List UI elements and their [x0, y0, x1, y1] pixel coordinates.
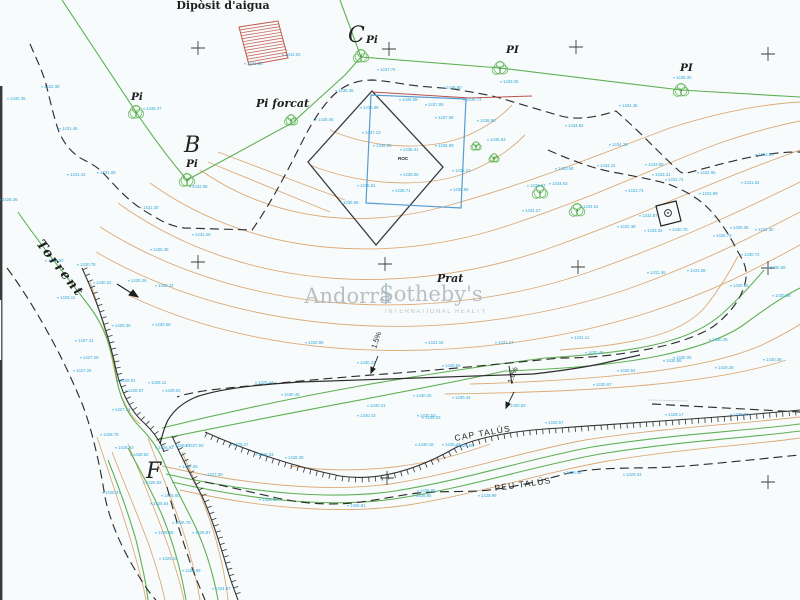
talus-tick: [209, 512, 214, 514]
grid-cross: [761, 47, 775, 61]
elevation-dot: [362, 132, 363, 133]
elevation-label: 1435.88: [363, 105, 379, 110]
elevation-dot: [665, 414, 666, 415]
elevation-label: 1431.30: [143, 205, 159, 210]
elevation-dot: [57, 297, 58, 298]
elevation-dot: [185, 445, 186, 446]
water-tank-hatch-line: [244, 38, 283, 44]
tree-center: [499, 67, 501, 69]
elevation-label: 1431.08: [100, 170, 116, 175]
elevation-label: 1429.28: [718, 365, 734, 370]
structure-symbol: [656, 201, 681, 226]
elevation-dot: [463, 99, 464, 100]
elevation-dot: [593, 384, 594, 385]
elevation-label: 1434.51: [583, 204, 599, 209]
water-tank-hatch: [240, 24, 287, 62]
elevation-label: 1432.35: [10, 96, 26, 101]
talus-tick: [196, 482, 200, 484]
grid-cross: [191, 41, 205, 55]
elevation-label: 1426.85: [416, 493, 432, 498]
contour-line: [330, 105, 512, 146]
elevation-dot: [59, 128, 60, 129]
elevation-label: 1427.05: [182, 464, 198, 469]
talus-tick: [111, 348, 116, 349]
elevation-dot: [305, 342, 306, 343]
lower-talus-line: [172, 436, 238, 600]
elevation-dot: [571, 337, 572, 338]
tree-icon: [489, 154, 499, 163]
tree-center: [475, 145, 477, 147]
elevation-dot: [413, 395, 414, 396]
elevation-label: 1428.87: [128, 388, 144, 393]
pi-label: Pi: [130, 91, 143, 103]
elevation-dot: [699, 193, 700, 194]
elevation-label: 1430.38: [766, 357, 782, 362]
talus-tick: [106, 329, 111, 330]
elevation-dot: [255, 454, 256, 455]
elevation-dot: [730, 414, 731, 415]
elevation-dot: [425, 342, 426, 343]
elevation-dot: [367, 405, 368, 406]
red-survey-line: [372, 92, 532, 98]
pi-label: PI: [505, 44, 520, 56]
elevation-dot: [155, 447, 156, 448]
boundary-lines: [7, 44, 800, 600]
elevation-label: 1430.22: [360, 360, 376, 365]
elevation-label: 1427.28: [83, 355, 99, 360]
watermark: Andorra Sotheby's INTERNATIONAL REALTY: [303, 282, 487, 315]
elevation-label: 1432.96: [700, 170, 716, 175]
talus-tick: [247, 450, 249, 455]
elevation-dot: [112, 325, 113, 326]
elevation-label: 1430.78: [80, 262, 96, 267]
elevation-dot: [645, 164, 646, 165]
elevation-label: 1436.63: [490, 137, 506, 142]
elevation-dot: [609, 144, 610, 145]
talus-tick: [150, 426, 154, 429]
elevation-label: 1435.81: [360, 183, 376, 188]
talus-tick: [205, 500, 210, 502]
grid-cross: [571, 260, 585, 274]
tree-center: [493, 157, 495, 159]
elevation-dot: [452, 170, 453, 171]
elevation-label: 1430.55: [733, 283, 749, 288]
elevation-dot: [340, 202, 341, 203]
talus-tick: [126, 397, 130, 399]
elevation-label: 1437.13: [365, 130, 381, 135]
elevation-label: 1435.56: [453, 187, 469, 192]
elevation-dot: [360, 107, 361, 108]
water-tank-hatch-line: [240, 24, 279, 30]
tree-center: [680, 89, 682, 91]
elevation-dot: [617, 226, 618, 227]
elevation-dot: [282, 54, 283, 55]
elevation-dot: [435, 145, 436, 146]
talus-tick: [137, 412, 141, 415]
elevation-label: 1428.35: [115, 323, 131, 328]
grid-cross: [191, 255, 205, 269]
talus-tick: [316, 471, 317, 476]
elevation-dot: [425, 104, 426, 105]
peu-talus-label: PEU TALÚS: [494, 475, 552, 493]
elevation-dot: [112, 409, 113, 410]
elevation-dot: [555, 168, 556, 169]
elevation-dot: [315, 119, 316, 120]
elevation-label: 1429.96: [458, 443, 474, 448]
elevation-label: 1433.74: [628, 188, 644, 193]
elevation-label: 1433.98: [558, 166, 574, 171]
water-tank-hatch-line: [241, 30, 280, 36]
water-tank-hatch-line: [247, 49, 286, 56]
talus-tick: [207, 506, 212, 508]
talus-tick: [236, 592, 241, 594]
elevation-dot: [255, 382, 256, 383]
grid-cross: [761, 475, 775, 489]
elevation-dot: [155, 285, 156, 286]
elevation-label: 1430.76: [672, 227, 688, 232]
elevation-label: 1424.98: [185, 568, 201, 573]
tree-icon: [471, 142, 481, 151]
elevation-label: 1431.84: [744, 180, 760, 185]
elevation-dot: [41, 86, 42, 87]
prat-label: Prat: [436, 272, 463, 285]
elevation-dot: [763, 359, 764, 360]
talus-tick: [272, 458, 274, 463]
talus-tick: [523, 431, 524, 436]
talus-tick: [491, 436, 492, 441]
talus-tick: [394, 473, 395, 478]
grid-cross: [569, 40, 583, 54]
pi-forcat-label: Pi forcat: [255, 97, 309, 110]
elevation-label: 1435.68: [402, 97, 418, 102]
elevation-dot: [172, 445, 173, 446]
roc-label: ROC: [398, 156, 409, 161]
elevation-dot: [150, 249, 151, 250]
elevation-dot: [500, 81, 501, 82]
elevation-dot: [161, 495, 162, 496]
elevation-label: 1443.02: [285, 52, 301, 57]
water-tank-outline: [239, 21, 288, 65]
talus-tick: [129, 402, 133, 405]
tree-icon: [128, 105, 144, 118]
elevation-dot: [663, 360, 664, 361]
elevation-label: 1431.89: [758, 152, 774, 157]
elevation-label: 1425.58: [158, 530, 174, 535]
talus-tick: [401, 471, 402, 476]
elevation-label: 1430.98: [666, 358, 682, 363]
elevation-dot: [230, 444, 231, 445]
tree-center: [135, 111, 137, 113]
elevation-dot: [400, 149, 401, 150]
elevation-label: 1436.31: [403, 147, 419, 152]
elevation-label: 1429.02: [165, 388, 181, 393]
elevation-dot: [75, 340, 76, 341]
elevation-label: 1424.87: [215, 586, 231, 591]
talus-tick: [303, 468, 304, 473]
pi-label: Pi: [365, 34, 378, 46]
elevation-dot: [143, 108, 144, 109]
talus-tick: [102, 317, 107, 319]
elevation-dot: [150, 503, 151, 504]
elevation-label: 1437.58: [438, 115, 454, 120]
talus-tick: [113, 354, 118, 355]
talus-tick: [335, 475, 336, 480]
elevation-dot: [452, 397, 453, 398]
road-lines: [160, 355, 640, 444]
elevation-dot: [115, 447, 116, 448]
elevation-label: 1430.48: [153, 247, 169, 252]
elevation-dot: [102, 492, 103, 493]
elevation-dot: [93, 282, 94, 283]
talus-tick: [218, 537, 223, 539]
water-tank: [239, 21, 288, 65]
talus-tick: [146, 421, 150, 425]
grid-cross: [382, 42, 396, 56]
talus-tick: [229, 574, 234, 576]
talus-tick: [121, 385, 126, 387]
elevation-label: 1431.18: [428, 340, 444, 345]
elevation-label: 1426.92: [158, 445, 174, 450]
elevation-dot: [619, 105, 620, 106]
elevation-label: 1432.98: [192, 184, 208, 189]
elevation-dot: [741, 254, 742, 255]
talus-tick: [154, 431, 158, 434]
elevation-label: 1428.91: [120, 378, 136, 383]
elevation-label: 1430.66: [445, 363, 461, 368]
tree-center: [186, 179, 188, 181]
elevation-label: 1437.89: [428, 102, 444, 107]
elevation-label: 1435.47: [146, 106, 162, 111]
elevation-label: 1434.63: [552, 181, 568, 186]
elevation-dot: [715, 367, 716, 368]
elevation-dot: [192, 234, 193, 235]
elevation-label: 1430.43: [360, 413, 376, 418]
elevation-label: 1430.44: [455, 395, 471, 400]
elevation-label: 1426.78: [175, 520, 191, 525]
elevation-dot: [665, 179, 666, 180]
elevation-label: 1434.27: [525, 208, 541, 213]
elevation-dot: [162, 390, 163, 391]
talus-tick: [241, 448, 243, 453]
elevation-dot: [140, 207, 141, 208]
elevation-dot: [189, 186, 190, 187]
elevation-label: 1430.88: [775, 293, 791, 298]
elevation-dot: [357, 362, 358, 363]
elevation-label: 1430.26: [131, 278, 147, 283]
elevation-dot: [159, 558, 160, 559]
elevation-label: 1430.18: [418, 442, 434, 447]
elevation-label: 1434.37: [530, 183, 546, 188]
elevation-label: 1433.88: [648, 162, 664, 167]
tree-center: [290, 119, 292, 121]
diamond-outline: [308, 91, 443, 245]
elevation-label: 1430.03: [425, 415, 441, 420]
talus-tick: [322, 472, 323, 477]
elevation-label: 1432.87: [642, 213, 658, 218]
elevation-dot: [563, 472, 564, 473]
elevation-dot: [565, 125, 566, 126]
talus-tick: [449, 452, 451, 456]
elevation-label: 1438.80: [480, 118, 496, 123]
talus-tick: [234, 586, 239, 588]
elevation-label: 1427.41: [78, 338, 94, 343]
elevation-dot: [597, 165, 598, 166]
talus-tick: [108, 335, 113, 336]
elevation-label: 1429.34: [626, 472, 642, 477]
elevation-dot: [73, 370, 74, 371]
green-fence-line: [340, 0, 800, 97]
elevation-label: 1434.36: [622, 103, 638, 108]
elevation-dot: [435, 117, 436, 118]
talus-tick: [116, 367, 121, 368]
elevation-dot: [623, 474, 624, 475]
elevation-dot: [357, 185, 358, 186]
elevation-dot: [155, 532, 156, 533]
elevation-label: 1436.71: [395, 188, 411, 193]
elevation-label: 1428.11: [151, 380, 167, 385]
boundary-dashed-ne: [652, 404, 800, 412]
parcel-letter: F: [145, 459, 162, 484]
elevation-dot: [585, 352, 586, 353]
talus-tick: [133, 407, 137, 410]
elevation-dot: [152, 324, 153, 325]
elevation-label: 1430.46: [284, 392, 300, 397]
elevation-dot: [741, 182, 742, 183]
slope-label-1: 1.5%: [369, 330, 383, 349]
elevation-dot: [527, 185, 528, 186]
elevation-dot: [67, 174, 68, 175]
elevation-dot: [117, 380, 118, 381]
elevation-label: 1425.60: [164, 493, 180, 498]
elevation-dot: [495, 342, 496, 343]
elevation-label: 1430.26: [416, 393, 432, 398]
talus-tick: [214, 524, 219, 526]
elevation-dot: [767, 267, 768, 268]
elevation-dot: [143, 482, 144, 483]
elevation-label: 1433.36: [503, 79, 519, 84]
elevation-label: 1430.72: [744, 252, 760, 257]
elevation-label: 1426.87: [195, 530, 211, 535]
elevation-dot: [755, 229, 756, 230]
elevation-label: 1435.06: [318, 117, 334, 122]
talus-tick: [205, 433, 207, 438]
talus-tick: [83, 268, 88, 270]
elevation-dot: [192, 532, 193, 533]
elevation-label: 1428.27: [233, 442, 249, 447]
elevation-label: 1432.74: [668, 177, 684, 182]
elevation-label: 1428.70: [733, 412, 749, 417]
elevation-label: 1425.16: [162, 556, 178, 561]
watermark-tagline: INTERNATIONAL REALTY: [385, 309, 487, 315]
talus-lines: [82, 268, 800, 600]
tree-center: [576, 209, 578, 211]
elevation-dot: [417, 415, 418, 416]
talus-tick: [224, 556, 229, 557]
water-tank-hatch-line: [246, 47, 285, 54]
talus-tick: [220, 543, 225, 544]
talus-tick: [329, 474, 330, 479]
elevation-label: 1438.36: [338, 88, 354, 93]
talus-tick: [223, 440, 225, 445]
talus-tick: [141, 417, 144, 421]
parcel-letters: BCF: [145, 23, 365, 484]
water-tank-hatch-line: [242, 32, 281, 38]
elevation-label: 1428.98: [481, 493, 497, 498]
elevation-dot: [125, 390, 126, 391]
water-tank-hatch-line: [244, 41, 283, 48]
elevation-dot: [625, 190, 626, 191]
elevation-label: 1431.42: [70, 172, 86, 177]
elevation-label: 1430.57: [548, 420, 564, 425]
scan-edge-gap: [0, 300, 1, 360]
elevation-label: 1437.76: [380, 67, 396, 72]
elevation-label: 1431.30: [758, 227, 774, 232]
elevation-label: 1427.93: [188, 443, 204, 448]
elevation-dot: [545, 422, 546, 423]
talus-tick: [375, 476, 376, 481]
parcel-letter: B: [183, 133, 200, 158]
talus-tick: [413, 468, 415, 473]
parcel-shapes: [308, 91, 681, 245]
elevation-label: 1430.28: [712, 337, 728, 342]
elevation-dot: [669, 229, 670, 230]
contour-line: [445, 360, 786, 394]
elevation-dot: [580, 206, 581, 207]
elevation-dot: [130, 454, 131, 455]
elevation-dot: [730, 227, 731, 228]
elevation-label: 1430.46: [588, 350, 604, 355]
talus-tick: [388, 474, 389, 479]
elevation-label: 1434.24: [600, 163, 616, 168]
elevation-dot: [357, 415, 358, 416]
elevation-label: 1430.22: [96, 280, 112, 285]
elevation-dot: [259, 499, 260, 500]
talus-tick: [504, 434, 505, 439]
elevation-dot: [522, 210, 523, 211]
talus-tick: [530, 430, 531, 435]
talus-tick: [88, 280, 93, 282]
talus-tick: [104, 323, 109, 325]
elevation-dot: [549, 183, 550, 184]
talus-tick: [226, 562, 231, 563]
grid-cross: [378, 257, 392, 271]
elevation-label: 1431.11: [574, 335, 590, 340]
elevation-label: 1428.85: [420, 488, 436, 493]
talus-tick: [266, 456, 268, 461]
talus-tick: [117, 373, 122, 374]
talus-tick: [278, 460, 279, 465]
watermark-right: Sotheby's: [379, 282, 482, 306]
elevation-dot: [80, 357, 81, 358]
talus-tick: [517, 432, 518, 437]
talus-tick: [407, 470, 409, 475]
contour-line: [150, 121, 800, 249]
contour-lines: [90, 102, 800, 600]
slope-arrow-head-1: [371, 367, 375, 373]
elevation-dot: [182, 570, 183, 571]
elevation-dot: [644, 230, 645, 231]
scanned-survey-plan: Andorra Sotheby's INTERNATIONAL REALTY: [0, 0, 800, 600]
talus-tick: [100, 310, 105, 312]
elevation-dot: [148, 382, 149, 383]
tree-center: [539, 191, 541, 193]
elevation-dot: [373, 145, 374, 146]
elevation-dot: [443, 87, 444, 88]
elevation-dot: [422, 417, 423, 418]
water-tank-hatch-line: [245, 44, 284, 51]
talus-tick: [212, 518, 217, 520]
elevation-label: 1430.41: [370, 403, 386, 408]
